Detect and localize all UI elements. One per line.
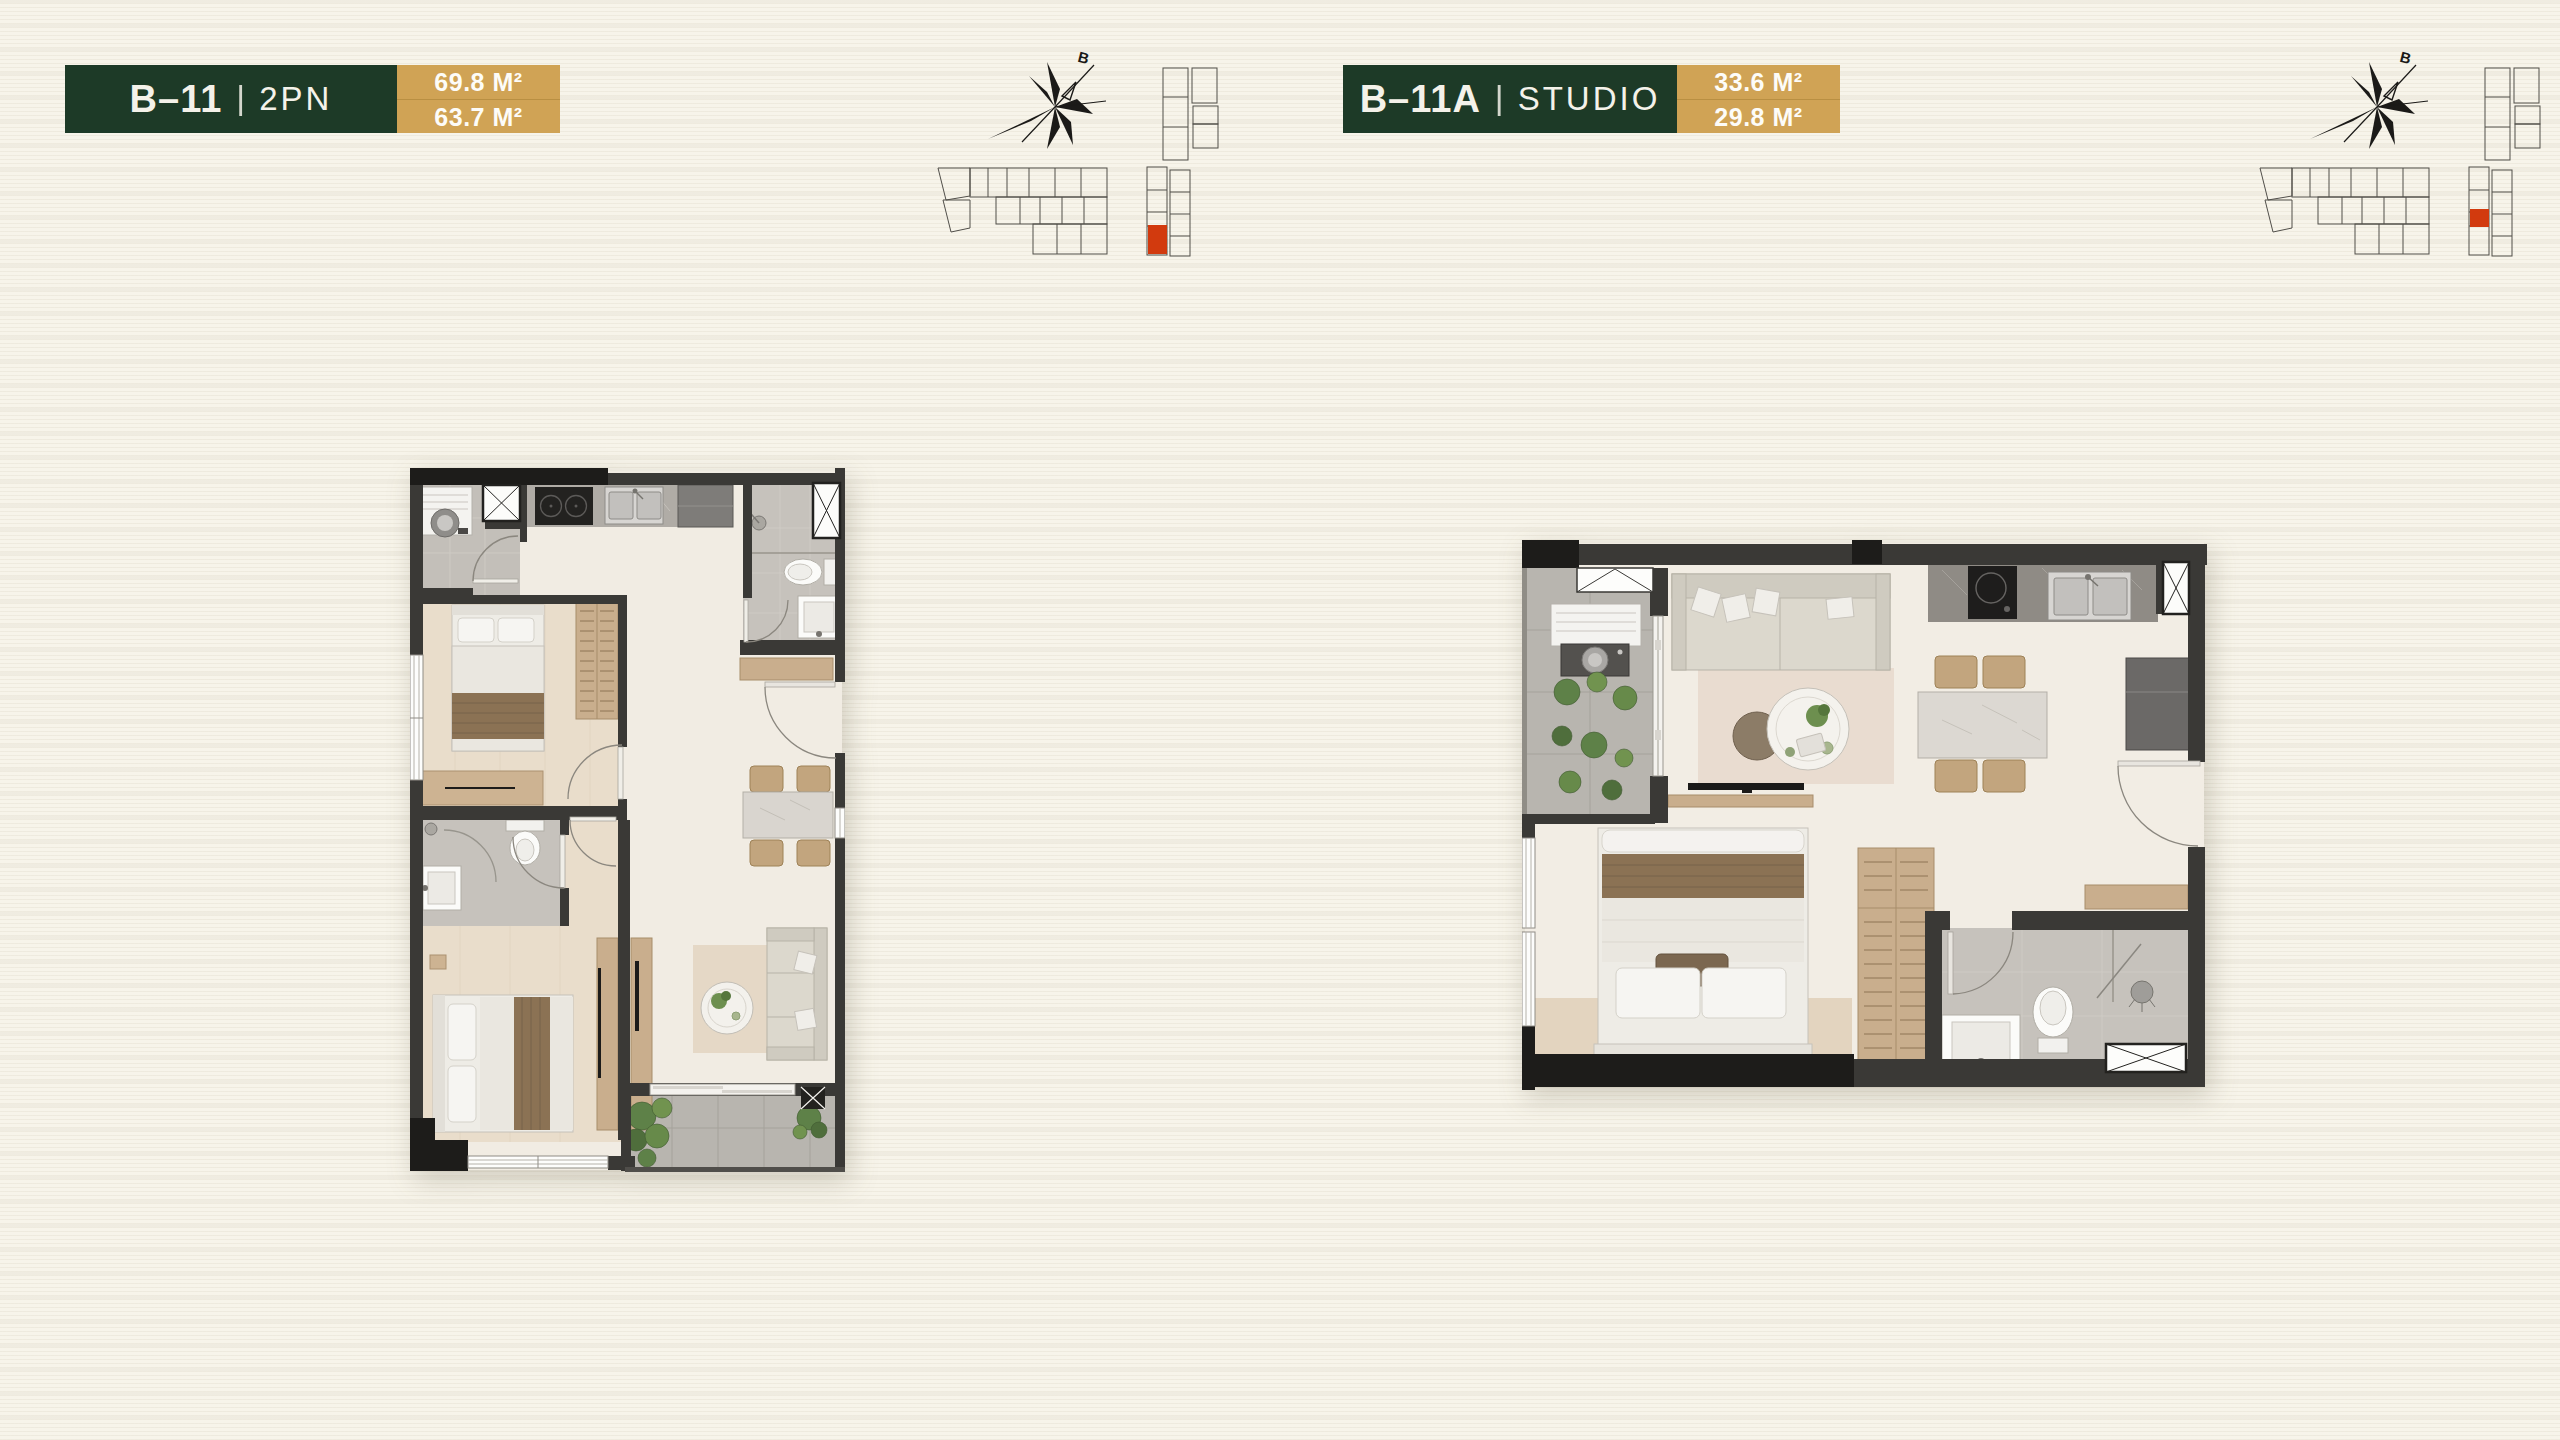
separator: | (1495, 78, 1504, 117)
toilet (2033, 987, 2073, 1053)
compass-icon: B (988, 48, 1106, 149)
compass-north-label: B (1076, 48, 1091, 67)
bathroom-sink (422, 866, 461, 910)
dining-chair (750, 840, 783, 866)
bed-double (433, 995, 573, 1132)
tv (635, 961, 639, 1031)
unit-type: STUDIO (1518, 80, 1661, 118)
dining-table (1918, 692, 2047, 758)
kitchen-counter (1928, 562, 2158, 622)
windows (1522, 838, 1535, 1026)
tv-console (597, 938, 618, 1130)
dresser (418, 771, 543, 805)
wardrobe (1858, 848, 1934, 1072)
shaft-box (2106, 1044, 2186, 1072)
shaft-box (2163, 562, 2189, 614)
unit-code-box: B–11A | STUDIO (1343, 65, 1677, 133)
window (835, 808, 845, 838)
locator-b11: B (930, 40, 1260, 280)
area-divider (397, 99, 560, 100)
dining-chair (1935, 760, 1977, 792)
sofa (1672, 574, 1890, 670)
keyplan-highlighted-unit (1148, 225, 1167, 254)
cooktop (535, 487, 593, 525)
kitchen-sink (2048, 572, 2131, 620)
bathroom-sink (798, 596, 840, 638)
window (1522, 838, 1535, 928)
washing-machine (418, 487, 472, 537)
bed-double (1594, 828, 1812, 1064)
compass-north-label: B (2398, 48, 2413, 67)
separator: | (236, 78, 245, 117)
area-net: 63.7 M² (397, 101, 560, 133)
shower-head (425, 823, 437, 835)
dining-chair (797, 840, 830, 866)
kitchen-counter (527, 485, 733, 527)
fridge (2126, 658, 2189, 750)
window (1522, 932, 1535, 1026)
dining-chair (1983, 760, 2025, 792)
tv-console (1668, 783, 1813, 807)
dining-chair (1935, 656, 1977, 688)
cooktop (1968, 566, 2017, 619)
entry-console (740, 658, 833, 680)
dining-table (743, 792, 833, 838)
sliding-door-balcony (650, 1084, 795, 1095)
area-net: 29.8 M² (1677, 101, 1840, 133)
locator-b11a: B (2252, 40, 2560, 280)
area-gross: 69.8 M² (397, 66, 560, 98)
dining-chair (797, 766, 830, 792)
area-gross: 33.6 M² (1677, 66, 1840, 98)
area-divider (1677, 99, 1840, 100)
kitchen-sink (605, 487, 663, 524)
hall-floor (562, 818, 620, 928)
vent-louver (1577, 568, 1653, 592)
nightstand (430, 955, 446, 969)
entry-console (2085, 885, 2188, 909)
unit-type: 2PN (259, 80, 332, 118)
floorplan-b11 (410, 468, 845, 1173)
unit-code: B–11A (1360, 78, 1481, 121)
sofa (767, 928, 827, 1060)
floorplan-sheet: { "panels": [ { "code": "B–11", "separat… (0, 0, 2560, 1440)
window (410, 655, 423, 780)
unit-code: B–11 (130, 78, 223, 121)
unit-area-box: 69.8 M² 63.7 M² (397, 65, 560, 133)
keyplan (2260, 68, 2540, 256)
unit-header-b11: B–11 | 2PN 69.8 M² 63.7 M² (65, 65, 560, 133)
tv (598, 968, 601, 1078)
shaft-box (801, 1087, 825, 1109)
sliding-door-balcony (1653, 616, 1663, 776)
window (468, 1156, 608, 1168)
shaft-box (813, 483, 840, 538)
compass-icon: B (2310, 48, 2428, 149)
toilet (784, 559, 837, 585)
unit-code-box: B–11 | 2PN (65, 65, 397, 133)
keyplan-highlighted-unit (2470, 209, 2489, 227)
dining-chair (750, 766, 783, 792)
tv (1688, 783, 1804, 790)
washing-machine (1551, 604, 1641, 676)
tv-console (631, 938, 652, 1130)
bed-double (452, 605, 544, 751)
wardrobe (576, 601, 618, 719)
keyplan (938, 68, 1218, 256)
floorplan-b11a (1522, 540, 2207, 1090)
shaft-box (483, 485, 520, 521)
unit-header-b11a: B–11A | STUDIO 33.6 M² 29.8 M² (1343, 65, 1840, 133)
coffee-table (701, 982, 753, 1034)
unit-area-box: 33.6 M² 29.8 M² (1677, 65, 1840, 133)
dining-chair (1983, 656, 2025, 688)
